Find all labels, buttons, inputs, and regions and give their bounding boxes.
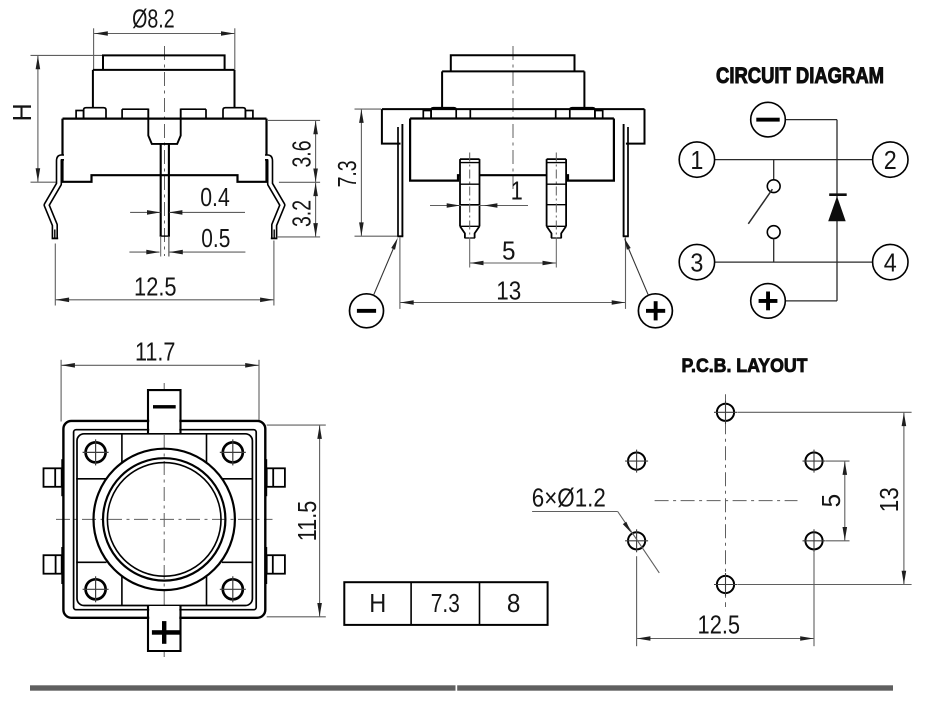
svg-text:CIRCUIT DIAGRAM: CIRCUIT DIAGRAM bbox=[716, 63, 884, 88]
svg-text:8: 8 bbox=[507, 590, 521, 618]
svg-text:5: 5 bbox=[502, 237, 516, 265]
svg-text:11.5: 11.5 bbox=[294, 501, 322, 542]
svg-text:13: 13 bbox=[496, 277, 521, 305]
svg-text:2: 2 bbox=[884, 145, 897, 175]
svg-text:1: 1 bbox=[690, 145, 703, 175]
svg-text:3.2: 3.2 bbox=[288, 200, 316, 227]
svg-text:11.7: 11.7 bbox=[135, 338, 176, 366]
svg-text:4: 4 bbox=[884, 247, 897, 277]
svg-text:3: 3 bbox=[690, 247, 703, 277]
svg-text:1: 1 bbox=[511, 178, 523, 206]
svg-text:H: H bbox=[9, 103, 37, 121]
svg-text:6×Ø1.2: 6×Ø1.2 bbox=[532, 484, 606, 512]
svg-text:P.C.B. LAYOUT: P.C.B. LAYOUT bbox=[682, 355, 808, 377]
svg-text:3.6: 3.6 bbox=[289, 141, 317, 168]
svg-text:Ø8.2: Ø8.2 bbox=[132, 6, 175, 34]
svg-text:7.3: 7.3 bbox=[334, 160, 362, 187]
svg-text:H: H bbox=[369, 590, 386, 618]
svg-text:0.5: 0.5 bbox=[201, 225, 230, 253]
svg-text:13: 13 bbox=[876, 487, 904, 512]
svg-text:0.4: 0.4 bbox=[200, 184, 230, 212]
svg-text:12.5: 12.5 bbox=[698, 611, 741, 639]
svg-text:7.3: 7.3 bbox=[431, 590, 460, 618]
svg-text:5: 5 bbox=[818, 494, 846, 508]
svg-text:12.5: 12.5 bbox=[134, 273, 177, 301]
